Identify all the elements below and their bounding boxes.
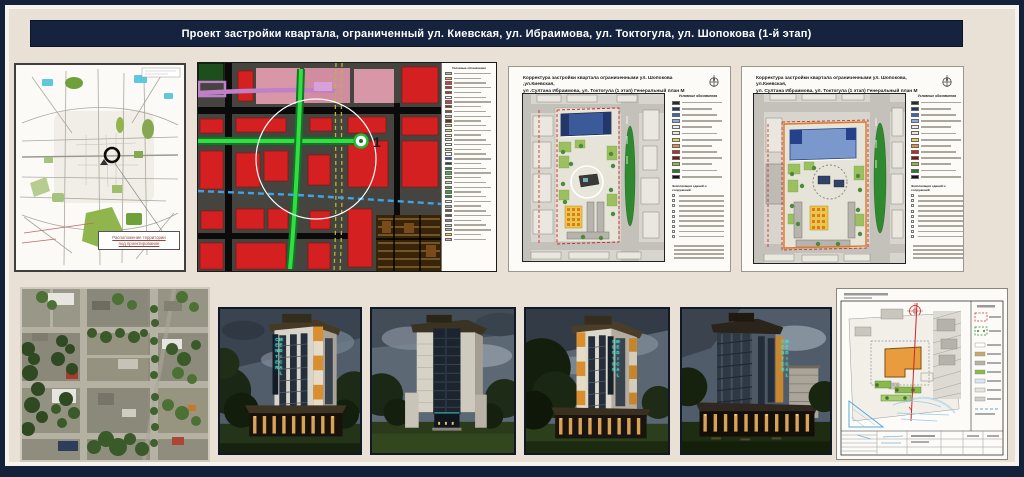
sheet-b-legend-rows [911, 101, 963, 179]
sheet-b-explication-rows [911, 194, 963, 238]
sheet-a-legend: Условные обозначения Экспликация зданий … [672, 94, 724, 261]
sheet-b-map [753, 93, 906, 264]
site-location-callout: Расположение территории под проектирован… [98, 231, 180, 250]
building-sign: MEDICAL CENTER [611, 339, 619, 397]
sheet-a-note-rows [672, 245, 724, 258]
building-render-2 [370, 307, 516, 455]
sheet-a-legend-rows [672, 101, 724, 179]
site-plan-sheet [836, 288, 1008, 460]
board-title: Проект застройки квартала, ограниченный … [182, 28, 812, 40]
zoning-legend: Условные обозначения [441, 63, 496, 271]
zoning-map-panel: 1 Условные обозначения [197, 62, 497, 272]
building-render-1: MEDICAL CENTER [218, 307, 362, 455]
sheet-a-explication-title: Экспликация зданий и сооружений [672, 184, 724, 192]
site-number-label: 1 [373, 134, 381, 150]
sheet-a-legend-title: Условные обозначения [672, 94, 724, 98]
compass-icon [707, 74, 721, 88]
title-bar: Проект застройки квартала, ограниченный … [30, 20, 963, 47]
building-render-3: MEDICAL CENTER [524, 307, 670, 455]
building-render-4: MEDICAL CENTER [680, 307, 832, 455]
callout-line-2: под проектирование [119, 241, 160, 247]
zoning-legend-title: Условные обозначения [445, 66, 493, 70]
sheet-b-title-line1: Корректура застройки квартала ограниченн… [756, 76, 928, 89]
sheet-a-explication-rows [672, 194, 724, 238]
master-plan-sheet-right: Корректура застройки квартала ограниченн… [741, 66, 964, 272]
zoning-legend-rows [445, 72, 493, 241]
aerial-photo [20, 287, 210, 462]
sheet-a-map [522, 93, 665, 262]
master-plan-sheet-left: Корректура застройки квартала ограниченн… [508, 66, 731, 272]
city-location-map-panel: Расположение территории под проектирован… [14, 63, 186, 272]
compass-icon [940, 74, 954, 88]
sheet-b-note-rows [911, 245, 963, 258]
sheet-b-legend-title: Условные обозначения [911, 94, 963, 98]
building-sign: MEDICAL CENTER [274, 337, 282, 399]
sheet-a-title-line1: Корректура застройки квартала ограниченн… [523, 76, 695, 89]
presentation-board: Проект застройки квартала, ограниченный … [0, 0, 1024, 477]
sheet-b-explication-title: Экспликация зданий и сооружений [911, 184, 963, 192]
sheet-b-legend: Условные обозначения Экспликация зданий … [911, 94, 963, 261]
building-sign: MEDICAL CENTER [780, 339, 788, 403]
